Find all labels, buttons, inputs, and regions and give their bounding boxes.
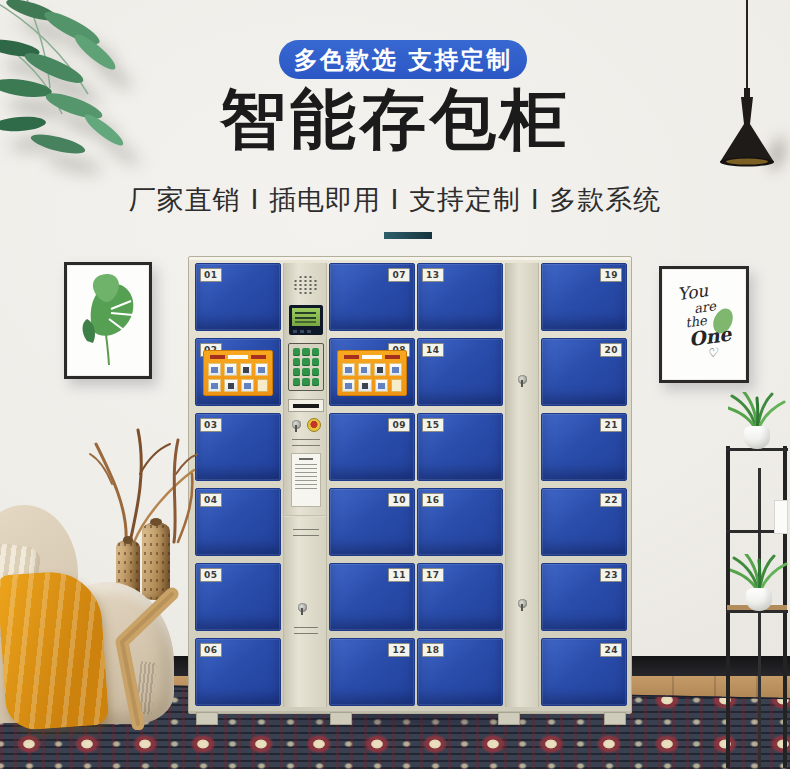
locker-door: 16 <box>417 488 503 556</box>
ticket-slot <box>288 399 324 412</box>
locker-door: 08 <box>329 338 415 406</box>
sofa-wood-frame <box>100 586 180 730</box>
door-number-badge: 23 <box>600 568 622 582</box>
locker-door: 17 <box>417 563 503 631</box>
cabinet-foot <box>196 712 218 725</box>
keyhole-icon <box>518 599 527 608</box>
sticker-title-bar <box>342 354 402 360</box>
door-number-badge: 05 <box>200 568 222 582</box>
door-number-badge: 01 <box>200 268 222 282</box>
page-title: 智能存包柜 <box>0 84 790 157</box>
door-number-badge: 06 <box>200 643 222 657</box>
locker-door: 03 <box>195 413 281 481</box>
shelf-photo-frame <box>774 500 788 534</box>
panel-label <box>294 627 318 634</box>
promo-pill: 多色款选 支持定制 <box>279 40 527 79</box>
locker-door: 22 <box>541 488 627 556</box>
cabinet-foot <box>330 712 352 725</box>
product-banner-image: 多色款选 支持定制 智能存包柜 厂家直销 I 插电即用 I 支持定制 I 多款系… <box>0 0 790 769</box>
door-number-badge: 12 <box>388 643 410 657</box>
plant-pot <box>744 426 770 449</box>
plant-pot <box>746 588 772 611</box>
locker-door: 06 <box>195 638 281 706</box>
locker-column-1: 01 02 03 04 05 06 <box>195 263 281 707</box>
smart-locker-cabinet: 01 02 03 04 05 06 <box>188 256 632 714</box>
locker-door: 02 <box>195 338 281 406</box>
door-number-badge: 22 <box>600 493 622 507</box>
panel-seam <box>284 515 326 517</box>
locker-door: 15 <box>417 413 503 481</box>
locker-door: 19 <box>541 263 627 331</box>
keyhole-icon <box>298 603 307 612</box>
locker-door: 04 <box>195 488 281 556</box>
door-number-badge: 10 <box>388 493 410 507</box>
sticker-title-bar <box>208 354 268 360</box>
door-number-badge: 04 <box>200 493 222 507</box>
locker-door: 23 <box>541 563 627 631</box>
locker-column-2: 07 08 09 10 11 12 <box>329 263 415 707</box>
divider-bar <box>384 232 432 239</box>
locker-column-4: 19 20 21 22 23 24 <box>541 263 627 707</box>
door-number-badge: 16 <box>422 493 444 507</box>
locker-door: 01 <box>195 263 281 331</box>
wall-art-quote: You are the One ♡ <box>659 266 749 383</box>
keyhole-icon <box>292 420 301 429</box>
locker-door: 13 <box>417 263 503 331</box>
door-number-badge: 15 <box>422 418 444 432</box>
locker-door: 10 <box>329 488 415 556</box>
panel-label <box>293 529 319 536</box>
locker-door: 21 <box>541 413 627 481</box>
keypad <box>288 343 324 391</box>
door-number-badge: 13 <box>422 268 444 282</box>
locker-door: 09 <box>329 413 415 481</box>
locker-door: 05 <box>195 563 281 631</box>
door-number-badge: 18 <box>422 643 444 657</box>
locker-door: 18 <box>417 638 503 706</box>
cabinet-foot <box>498 712 520 725</box>
keyhole-icon <box>518 375 527 384</box>
wall-art-monstera <box>64 262 152 379</box>
locker-door: 07 <box>329 263 415 331</box>
door-number-badge: 20 <box>600 343 622 357</box>
locker-column-3: 13 14 15 16 17 18 <box>417 263 503 707</box>
door-number-badge: 09 <box>388 418 410 432</box>
display-screen <box>289 305 323 335</box>
emergency-button <box>307 418 321 432</box>
door-number-badge: 07 <box>388 268 410 282</box>
instruction-sheet <box>291 453 321 507</box>
promo-pill-label: 多色款选 支持定制 <box>294 44 512 76</box>
locker-door: 11 <box>329 563 415 631</box>
lamp-cord <box>746 0 748 96</box>
monstera-illustration <box>73 271 143 370</box>
lock-row <box>288 417 324 433</box>
page-subtitle: 厂家直销 I 插电即用 I 支持定制 I 多款系统 <box>0 182 790 218</box>
speaker-grille-icon <box>293 275 319 295</box>
instruction-sticker <box>203 350 273 396</box>
door-number-badge: 03 <box>200 418 222 432</box>
locker-door: 14 <box>417 338 503 406</box>
panel-label <box>292 439 320 446</box>
cabinet-foot <box>604 712 626 725</box>
locker-door: 24 <box>541 638 627 706</box>
door-number-badge: 17 <box>422 568 444 582</box>
door-number-badge: 14 <box>422 343 444 357</box>
locker-door: 20 <box>541 338 627 406</box>
door-number-badge: 24 <box>600 643 622 657</box>
quote-text: You are the One ♡ <box>657 278 751 367</box>
metal-shelf <box>758 468 761 768</box>
locker-door: 12 <box>329 638 415 706</box>
side-lock-column <box>505 263 539 707</box>
control-panel-column <box>283 263 327 707</box>
door-number-badge: 11 <box>388 568 410 582</box>
door-number-badge: 21 <box>600 418 622 432</box>
decor-branches <box>88 414 198 544</box>
door-number-badge: 19 <box>600 268 622 282</box>
instruction-sticker <box>337 350 407 396</box>
